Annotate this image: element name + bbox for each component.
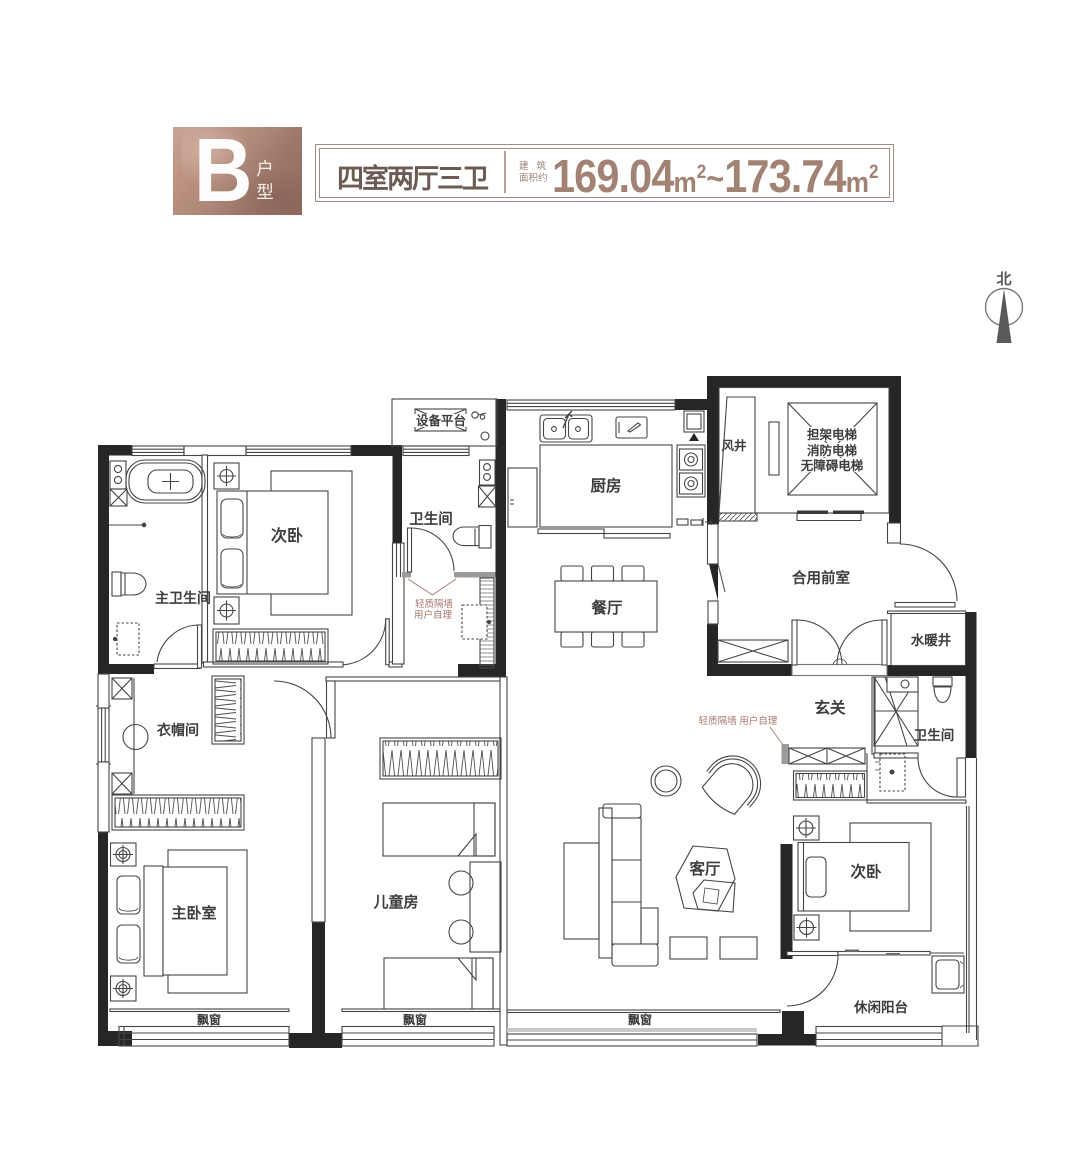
svg-text:休闲阳台: 休闲阳台: [853, 999, 908, 1015]
svg-text:用户自理: 用户自理: [414, 609, 453, 621]
svg-text:合用前室: 合用前室: [791, 569, 850, 587]
svg-text:卫生间: 卫生间: [914, 727, 955, 743]
svg-text:次卧: 次卧: [850, 862, 882, 881]
svg-text:水暖井: 水暖井: [911, 632, 952, 648]
svg-text:主卧室: 主卧室: [171, 904, 216, 922]
svg-text:飘窗: 飘窗: [628, 1012, 652, 1027]
svg-text:餐厅: 餐厅: [590, 598, 623, 617]
svg-text:次卧: 次卧: [271, 526, 303, 545]
svg-text:卫生间: 卫生间: [409, 510, 453, 528]
svg-text:飘窗: 飘窗: [197, 1012, 221, 1027]
svg-text:设备平台: 设备平台: [416, 413, 466, 428]
svg-text:主卫生间: 主卫生间: [155, 590, 211, 606]
svg-text:飘窗: 飘窗: [403, 1012, 427, 1027]
svg-text:衣帽间: 衣帽间: [157, 722, 199, 738]
svg-text:北: 北: [996, 271, 1011, 288]
svg-text:客厅: 客厅: [689, 859, 721, 878]
svg-text:轻质隔墙: 轻质隔墙: [415, 598, 454, 610]
svg-text:消防电梯: 消防电梯: [807, 443, 858, 458]
svg-text:轻质隔墙 用户自理: 轻质隔墙 用户自理: [699, 715, 778, 727]
svg-text:玄关: 玄关: [814, 698, 846, 717]
svg-text:无障碍电梯: 无障碍电梯: [800, 458, 864, 473]
svg-text:风井: 风井: [721, 438, 747, 453]
svg-text:儿童房: 儿童房: [372, 893, 418, 911]
svg-text:厨房: 厨房: [590, 476, 621, 495]
svg-text:担架电梯: 担架电梯: [807, 427, 858, 442]
